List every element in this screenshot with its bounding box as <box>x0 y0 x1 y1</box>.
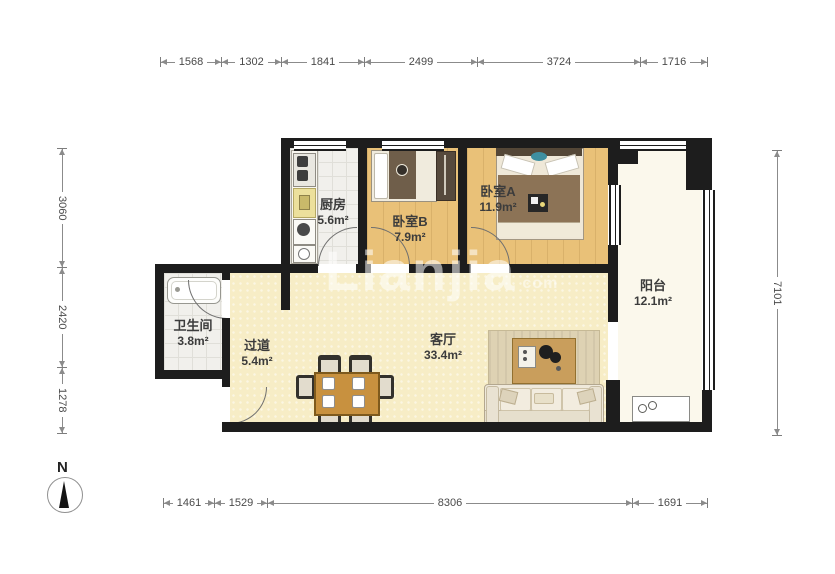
room-label-kitchen: 厨房 5.6m² <box>317 197 348 228</box>
plate <box>322 395 335 408</box>
room-label-hallway: 过道 5.4m² <box>241 338 272 369</box>
washer-dial <box>648 401 657 410</box>
plate <box>322 377 335 390</box>
kitchen-utensil <box>299 195 310 210</box>
wall <box>292 264 318 273</box>
dim-label: 1461 <box>173 496 205 510</box>
wall <box>608 264 618 322</box>
dim-label: 1841 <box>307 55 339 69</box>
room-name: 卧室B <box>392 214 427 230</box>
dim-label: 1568 <box>175 55 207 69</box>
table-decor <box>556 366 561 371</box>
wall <box>222 422 712 432</box>
bedroomB-pillow <box>374 153 388 199</box>
bedroomB-decor <box>396 164 408 176</box>
dim-label: 2499 <box>405 55 437 69</box>
room-label-balcony: 阳台 12.1m² <box>634 278 672 309</box>
watermark-text: Lianjia <box>325 238 516 303</box>
bedroomA-balcony-window <box>609 185 621 245</box>
balcony-top-window <box>620 139 686 151</box>
chair-seat <box>299 378 312 396</box>
room-area: 33.4m² <box>424 348 462 363</box>
sofa-armrest <box>486 386 499 424</box>
dim-label: 1691 <box>654 496 686 510</box>
stove-burner <box>297 156 308 167</box>
sofa-pillow <box>534 393 554 404</box>
balcony-side-window <box>703 190 715 390</box>
plate <box>352 377 365 390</box>
dim-label: 3724 <box>543 55 575 69</box>
room-label-living: 客厅 33.4m² <box>424 332 462 363</box>
wall <box>155 264 164 379</box>
dimension-col-right: 7101 <box>770 150 784 436</box>
wall <box>222 264 230 280</box>
compass-needle-icon <box>59 481 69 508</box>
bedroomA-cushion <box>531 152 547 161</box>
kitchen-window <box>294 139 346 151</box>
tray-item <box>531 197 538 204</box>
floor-plan-canvas: 厨房 5.6m² 卧室B 7.9m² 卧室A 11.9m² 阳台 12.1m² … <box>0 0 835 574</box>
room-label-bathroom: 卫生间 3.8m² <box>173 318 212 349</box>
dim-label: 8306 <box>434 496 466 510</box>
wall <box>281 138 290 310</box>
room-area: 11.9m² <box>479 200 516 215</box>
dim-label: 2420 <box>55 301 69 333</box>
dim-label: 1278 <box>55 384 69 416</box>
room-name: 厨房 <box>317 197 348 213</box>
watermark: Lianjia com <box>325 238 558 303</box>
dim-label: 3060 <box>55 192 69 224</box>
dimension-row-bottom: 1461 1529 8306 1691 <box>163 496 708 510</box>
bathtub-drain <box>175 287 180 292</box>
wall <box>222 318 230 370</box>
room-label-bedroomA: 卧室A 11.9m² <box>479 184 516 215</box>
bedroomA-bed-foot <box>498 222 580 237</box>
wall <box>155 370 230 379</box>
coffee-table-card <box>518 346 536 368</box>
wall <box>222 379 230 387</box>
dim-label: 1302 <box>235 55 267 69</box>
bedroomB-wardrobe <box>436 151 456 201</box>
stove-burner <box>297 170 308 181</box>
washer-dial <box>638 404 647 413</box>
room-name: 阳台 <box>634 278 672 294</box>
dimension-row-top: 1568 1302 1841 2499 3724 1716 <box>160 55 708 69</box>
watermark-suffix: com <box>522 275 558 303</box>
card-dot <box>523 357 527 361</box>
room-area: 7.9m² <box>392 230 427 245</box>
dimension-col-left: 3060 2420 1278 <box>55 148 69 434</box>
room-area: 3.8m² <box>173 334 212 349</box>
plate <box>352 395 365 408</box>
room-name: 卫生间 <box>173 318 212 334</box>
room-area: 12.1m² <box>634 294 672 309</box>
room-name: 过道 <box>241 338 272 354</box>
room-name: 客厅 <box>424 332 462 348</box>
dim-label: 1716 <box>658 55 690 69</box>
dim-label: 1529 <box>225 496 257 510</box>
dim-label: 7101 <box>770 277 784 309</box>
wardrobe-handle <box>444 155 446 195</box>
room-name: 卧室A <box>479 184 516 200</box>
wall <box>686 138 712 190</box>
tray-dot <box>540 202 545 207</box>
card-dot <box>523 350 527 354</box>
kettle <box>298 248 310 260</box>
compass-north-label: N <box>57 459 68 476</box>
bedroomB-window <box>382 139 444 151</box>
room-area: 5.4m² <box>241 354 272 369</box>
room-label-bedroomB: 卧室B 7.9m² <box>392 214 427 245</box>
room-area: 5.6m² <box>317 213 348 228</box>
table-decor <box>550 352 561 363</box>
sink-basin <box>297 223 310 236</box>
